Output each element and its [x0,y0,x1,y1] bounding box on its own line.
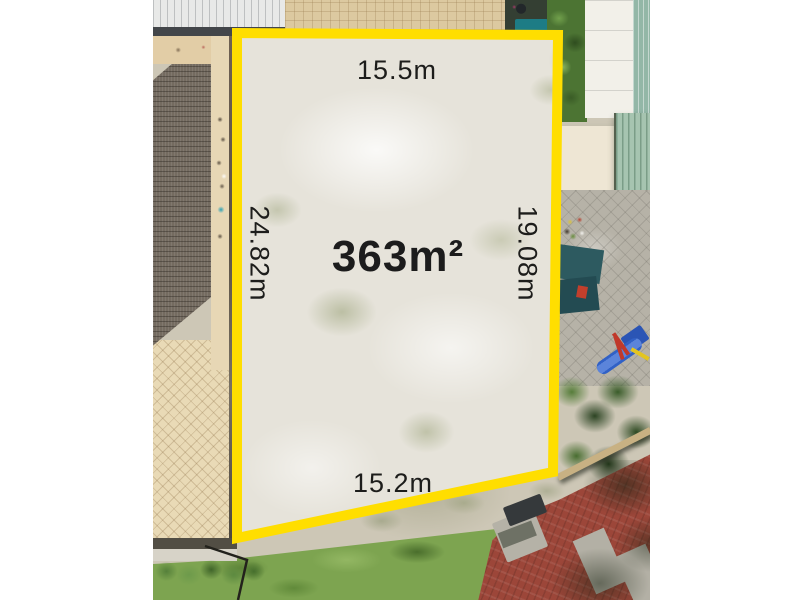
lot-area-label: 363m² [303,232,493,282]
survey-peg-line [205,546,247,600]
boundary-overlay [153,0,650,600]
dimension-label-right: 19.08m [516,194,543,314]
property-listing-image: 15.5m 24.82m 19.08m 15.2m 363m² [0,0,800,600]
dimension-label-bottom: 15.2m [343,468,443,499]
dimension-label-top: 15.5m [347,55,447,86]
aerial-photo: 15.5m 24.82m 19.08m 15.2m 363m² [153,0,650,600]
lot-boundary-polygon [237,33,558,538]
dimension-label-left: 24.82m [248,194,275,314]
